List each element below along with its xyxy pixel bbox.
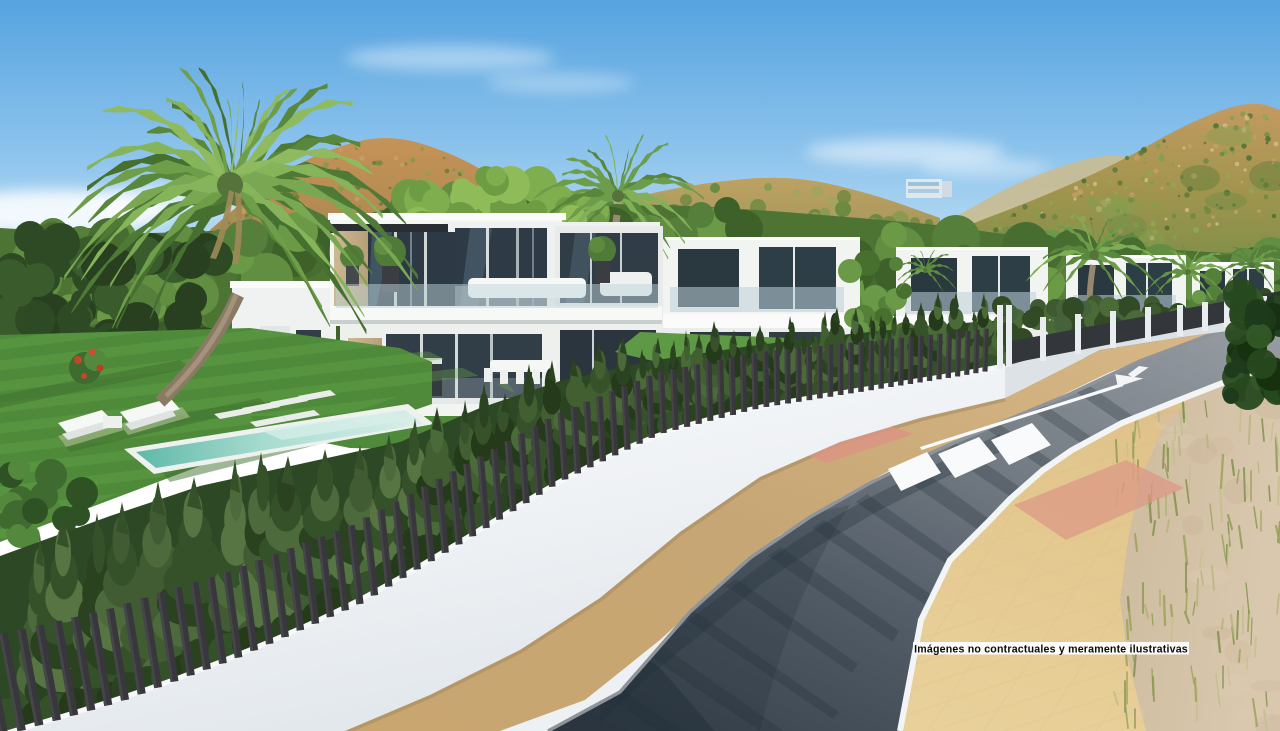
svg-text:Imágenes no contractuales y me: Imágenes no contractuales y meramente il…: [914, 643, 1188, 655]
